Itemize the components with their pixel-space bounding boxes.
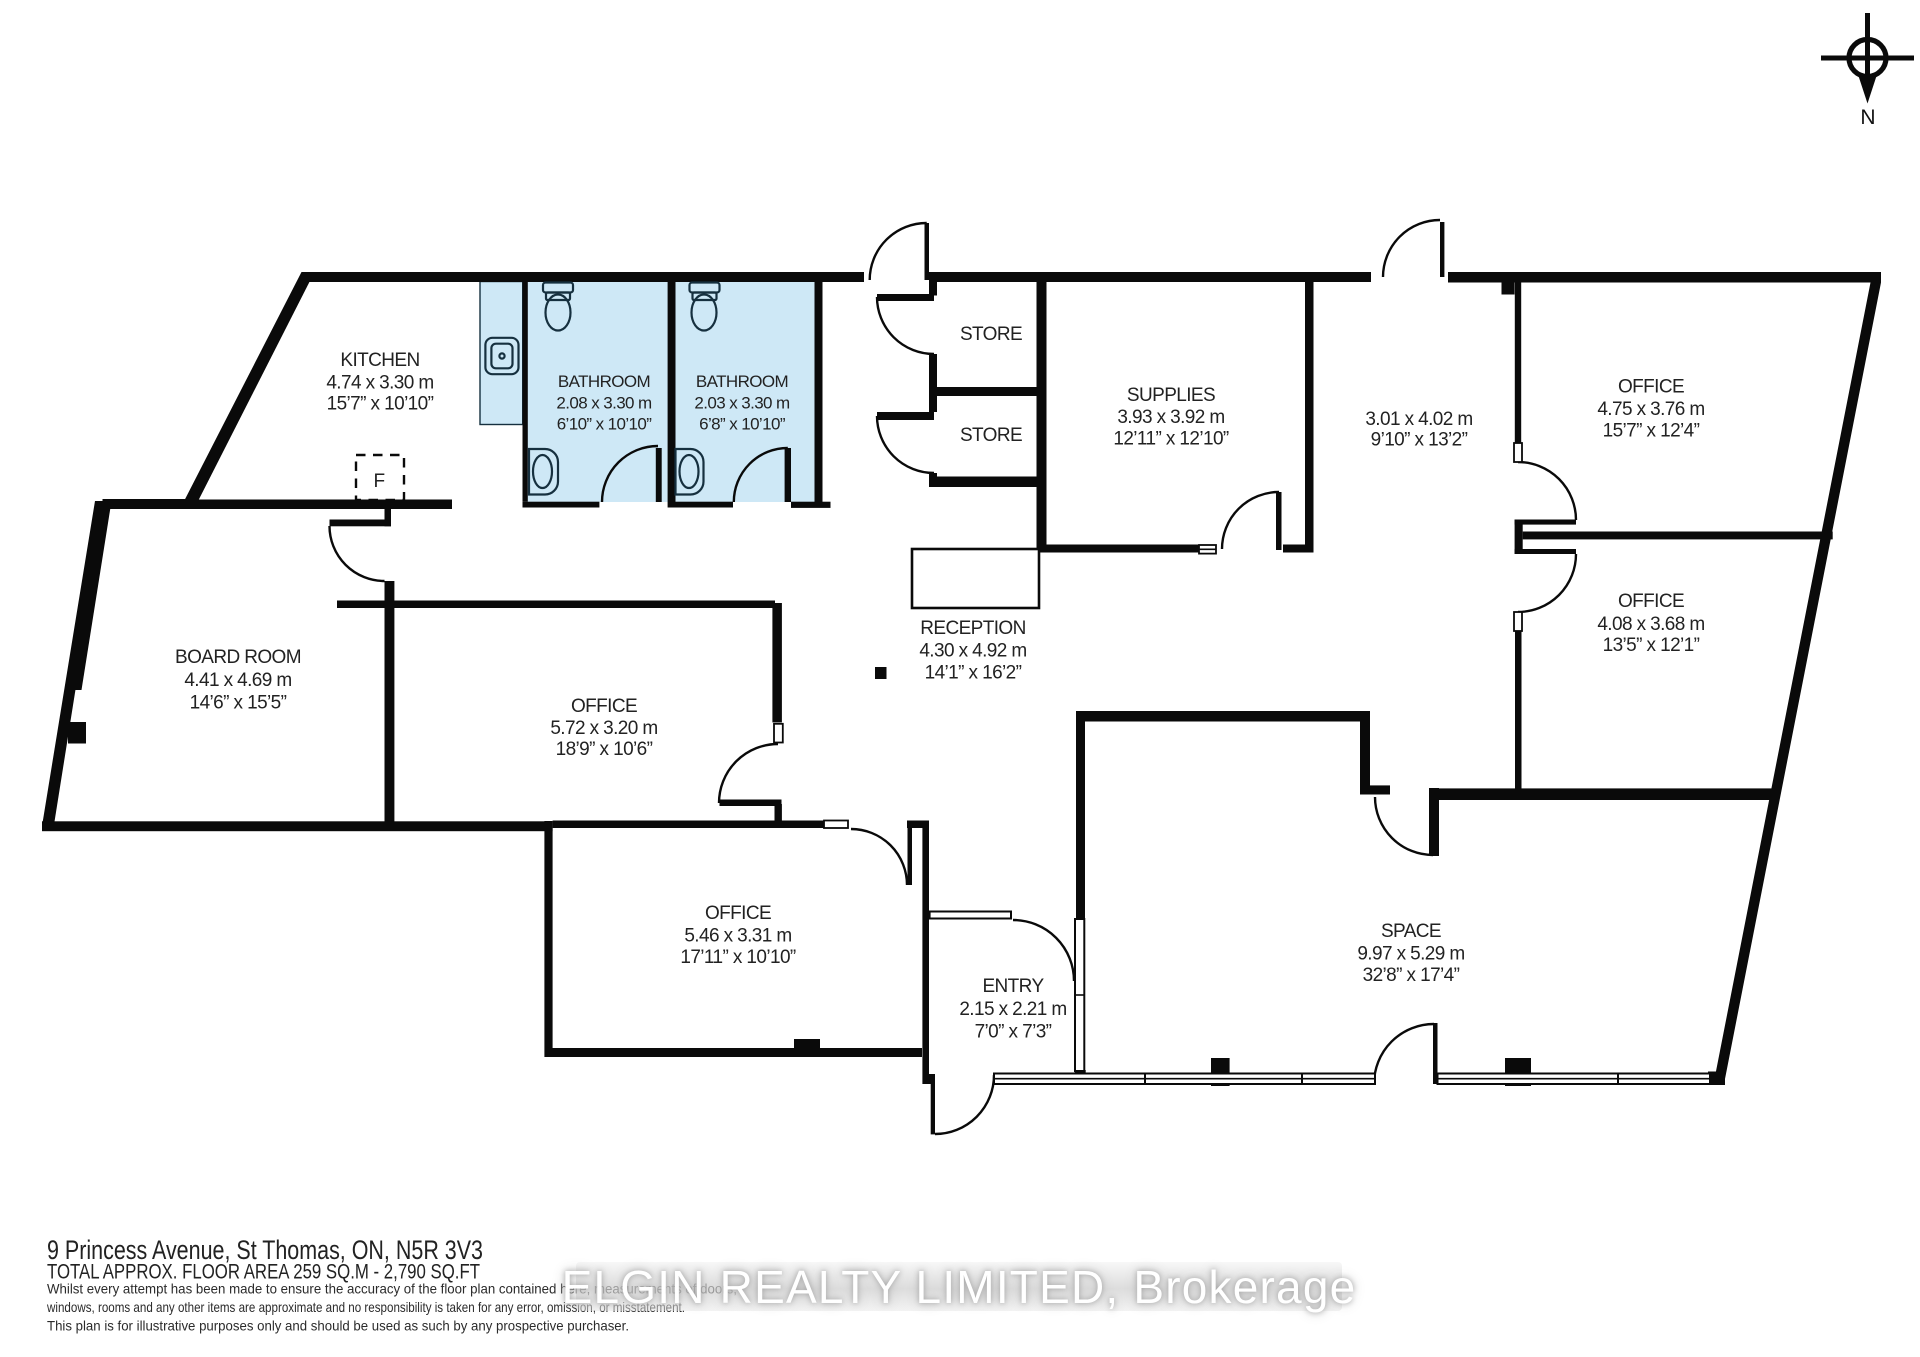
svg-text:OFFICE: OFFICE	[571, 696, 637, 717]
svg-text:9’10” x 13’2”: 9’10” x 13’2”	[1371, 430, 1468, 451]
svg-text:5.46 x 3.31 m: 5.46 x 3.31 m	[684, 926, 791, 947]
svg-text:2.03 x 3.30 m: 2.03 x 3.30 m	[694, 394, 790, 413]
svg-text:STORE: STORE	[960, 324, 1022, 345]
svg-text:6’10” x 10’10”: 6’10” x 10’10”	[557, 415, 653, 434]
svg-text:14’1” x 16’2”: 14’1” x 16’2”	[925, 663, 1022, 684]
svg-text:4.74 x 3.30 m: 4.74 x 3.30 m	[326, 373, 433, 394]
svg-text:15’7” x 10’10”: 15’7” x 10’10”	[327, 394, 434, 415]
svg-text:F: F	[373, 471, 384, 492]
svg-text:SUPPLIES: SUPPLIES	[1127, 385, 1215, 406]
svg-text:STORE: STORE	[960, 425, 1022, 446]
svg-text:4.30 x 4.92 m: 4.30 x 4.92 m	[919, 641, 1026, 662]
svg-text:7’0” x 7’3”: 7’0” x 7’3”	[975, 1022, 1052, 1043]
svg-text:OFFICE: OFFICE	[1618, 591, 1684, 612]
svg-text:SPACE: SPACE	[1381, 921, 1441, 942]
svg-text:N: N	[1860, 106, 1875, 129]
svg-text:17’11” x 10’10”: 17’11” x 10’10”	[680, 947, 796, 968]
svg-text:This plan is for illustrative: This plan is for illustrative purposes o…	[47, 1318, 629, 1334]
svg-text:OFFICE: OFFICE	[1618, 377, 1684, 398]
svg-text:15’7” x 12’4”: 15’7” x 12’4”	[1603, 421, 1700, 442]
svg-text:2.15 x 2.21 m: 2.15 x 2.21 m	[959, 999, 1066, 1020]
svg-text:OFFICE: OFFICE	[705, 903, 771, 924]
svg-text:BOARD ROOM: BOARD ROOM	[175, 647, 301, 668]
svg-text:4.08 x 3.68 m: 4.08 x 3.68 m	[1597, 614, 1704, 635]
svg-text:18’9” x 10’6”: 18’9” x 10’6”	[556, 739, 653, 760]
svg-text:BATHROOM: BATHROOM	[558, 372, 650, 391]
svg-text:32’8” x 17’4”: 32’8” x 17’4”	[1363, 965, 1460, 986]
svg-text:RECEPTION: RECEPTION	[920, 618, 1025, 639]
svg-text:4.75 x 3.76 m: 4.75 x 3.76 m	[1597, 399, 1704, 420]
svg-text:KITCHEN: KITCHEN	[340, 350, 419, 371]
svg-text:3.01 x 4.02 m: 3.01 x 4.02 m	[1365, 409, 1472, 430]
svg-text:13’5” x 12’1”: 13’5” x 12’1”	[1603, 635, 1700, 656]
svg-text:14’6” x 15’5”: 14’6” x 15’5”	[190, 693, 287, 714]
svg-text:5.72 x 3.20 m: 5.72 x 3.20 m	[550, 718, 657, 739]
svg-text:2.08 x 3.30 m: 2.08 x 3.30 m	[556, 394, 652, 413]
svg-text:4.41 x 4.69 m: 4.41 x 4.69 m	[184, 670, 291, 691]
svg-text:9.97 x 5.29 m: 9.97 x 5.29 m	[1357, 944, 1464, 965]
svg-text:BATHROOM: BATHROOM	[696, 372, 788, 391]
svg-text:12’11” x 12’10”: 12’11” x 12’10”	[1113, 429, 1229, 450]
svg-text:ENTRY: ENTRY	[982, 976, 1044, 997]
svg-text:6’8” x 10’10”: 6’8” x 10’10”	[699, 415, 786, 434]
svg-text:3.93 x 3.92 m: 3.93 x 3.92 m	[1117, 407, 1224, 428]
